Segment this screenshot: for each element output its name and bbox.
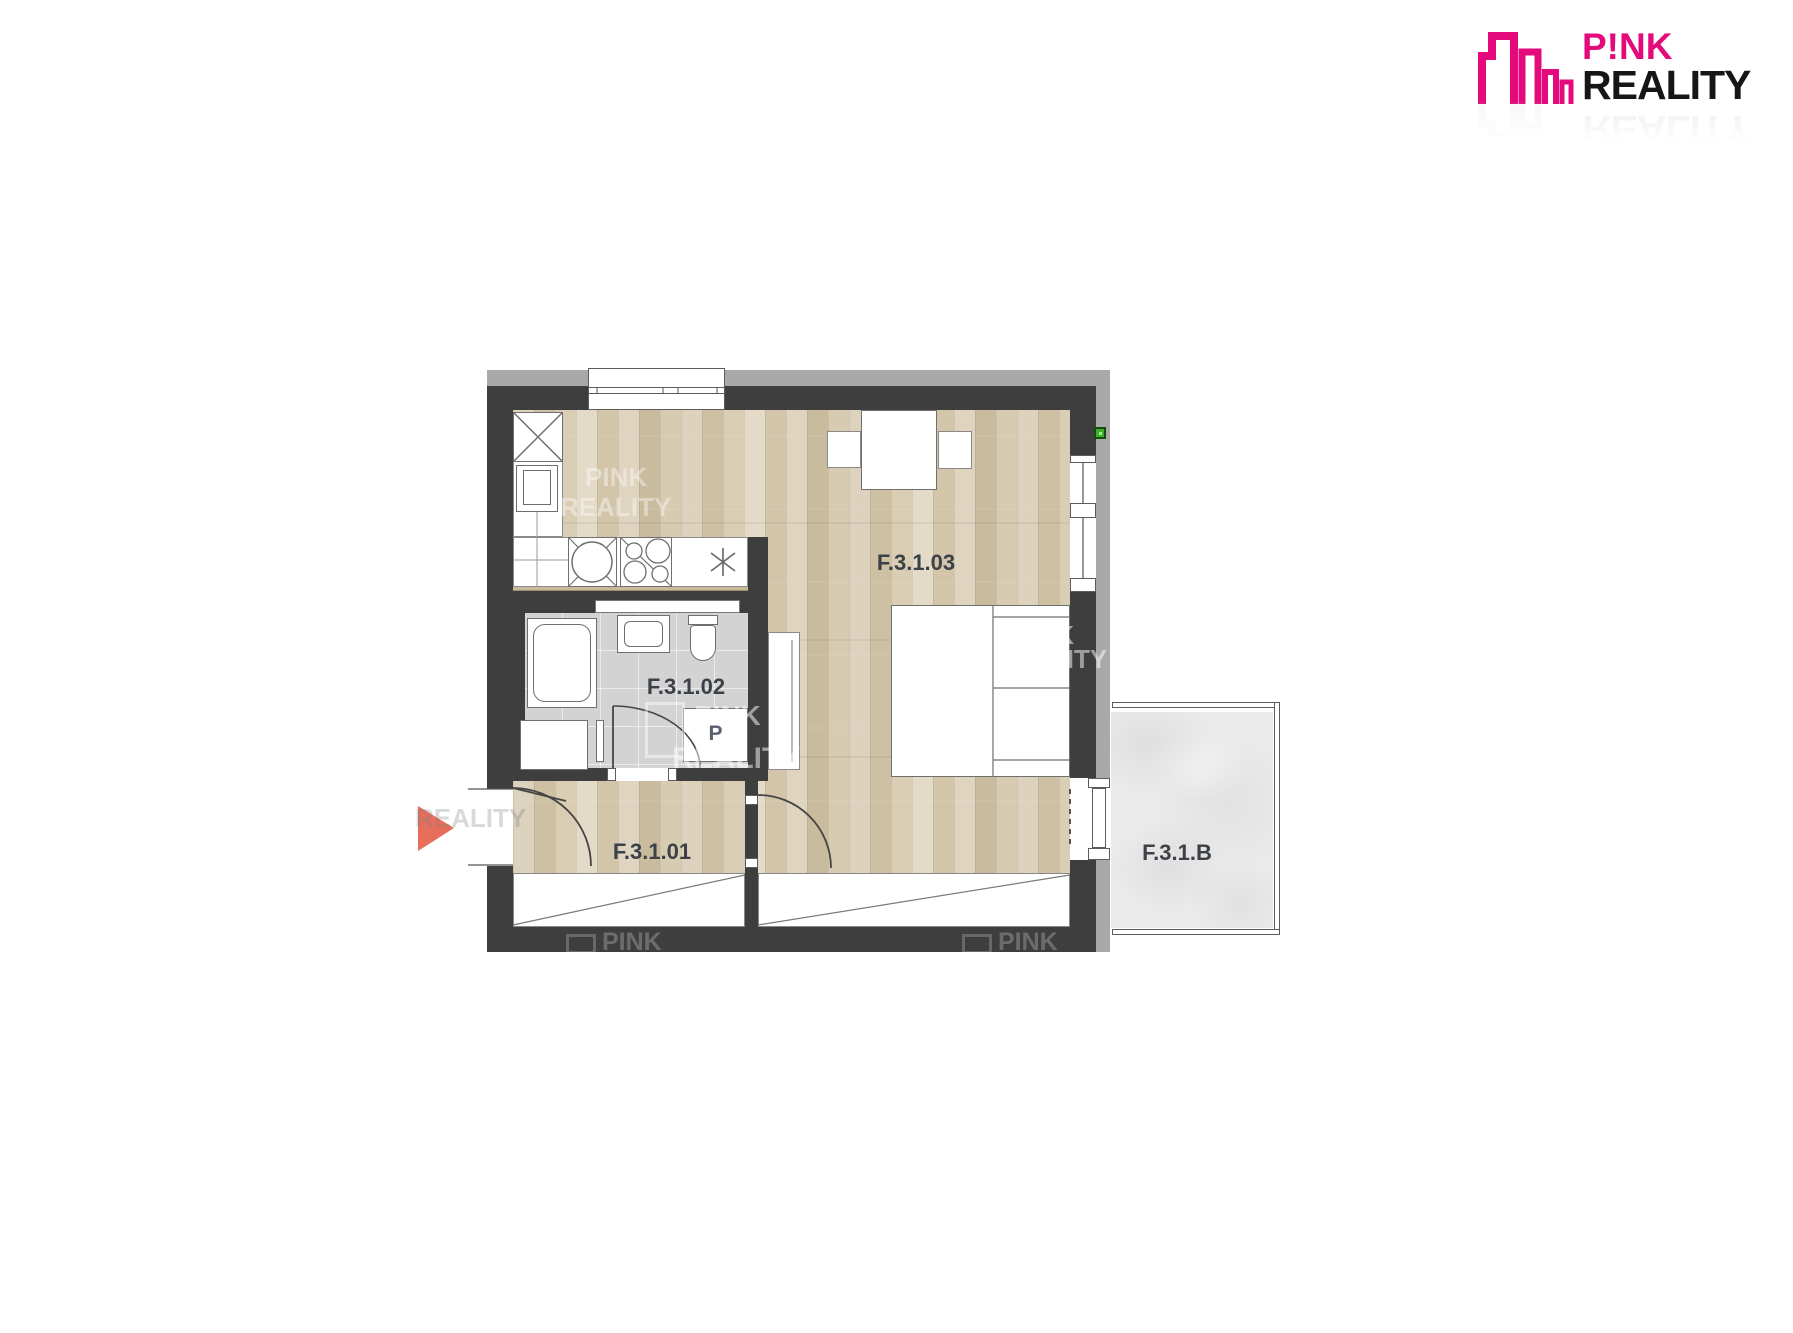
bathtub-inner — [533, 624, 591, 702]
room-label-balcony: F.3.1.B — [1122, 840, 1232, 866]
brand-logo: P!NK REALITY REALITY — [1468, 22, 1778, 147]
entrance-arrow-icon — [418, 806, 454, 851]
logo-reflection-fade — [1468, 104, 1778, 149]
room-label-bathroom: F.3.1.02 — [631, 674, 741, 700]
floorplan-page: P — [0, 0, 1793, 1333]
east-window-gap — [1070, 455, 1096, 592]
bathroom-sink-basin — [624, 621, 663, 647]
bathroom-duct-niche — [595, 600, 740, 613]
room-label-living: F.3.1.03 — [861, 550, 971, 576]
balcony-door-leaf — [1092, 788, 1106, 848]
wall-left-upper — [487, 386, 513, 789]
east-window-frame-top — [1070, 455, 1096, 463]
closet-right — [758, 873, 1070, 927]
chair-left — [827, 431, 861, 468]
east-window-frame-bottom — [1070, 578, 1096, 592]
wall-right-below-balcony-door — [1070, 860, 1096, 927]
wall-right-above-window — [1070, 410, 1096, 455]
north-window-sill — [588, 393, 725, 410]
washing-machine-label: P — [683, 722, 748, 746]
kitchen-hob-box — [620, 537, 672, 587]
chair-right — [938, 431, 972, 469]
wall-top-right — [725, 386, 1096, 410]
bathroom-door-jamb — [596, 720, 604, 762]
room-label-hallway: F.3.1.01 — [597, 839, 707, 865]
toilet-bowl — [690, 625, 716, 661]
outer-edge-top — [487, 370, 1110, 386]
brand-logo-skyline-icon — [1472, 26, 1576, 106]
outer-edge-right-lower — [1096, 860, 1110, 952]
kitchen-counter-edge — [513, 587, 748, 591]
toilet-tank — [688, 615, 718, 625]
outer-edge-right-upper — [1096, 386, 1110, 778]
bathroom-door-frame-right — [668, 768, 677, 781]
north-window-outer — [588, 368, 725, 388]
bathroom-door-gap — [607, 768, 677, 781]
utility-marker — [1094, 427, 1106, 439]
bathroom-door-frame-left — [607, 768, 616, 781]
dining-table — [861, 410, 937, 490]
balcony-railing-top — [1112, 702, 1280, 708]
balcony-floor — [1111, 712, 1273, 928]
wall-right-mid — [1070, 592, 1096, 778]
kitchen-oven-inner — [523, 470, 551, 505]
balcony-railing-bottom — [1112, 929, 1280, 935]
balcony-railing-right — [1274, 702, 1280, 935]
balcony-door-frame-top — [1088, 778, 1110, 788]
balcony-door-frame-bottom — [1088, 848, 1110, 860]
living-door-frame-top — [745, 795, 758, 805]
bed — [891, 605, 1070, 777]
brand-name-bottom: REALITY — [1582, 62, 1750, 109]
entrance-door-gap — [487, 789, 513, 866]
kitchen-sink-box — [568, 537, 617, 587]
living-door-frame-bottom — [745, 858, 758, 868]
kitchen-fridge-cabinet — [513, 412, 563, 462]
wardrobe — [768, 632, 800, 770]
bathroom-niche-box — [520, 720, 588, 770]
wall-bathroom-right — [748, 537, 768, 781]
closet-left — [513, 873, 745, 927]
wall-bottom — [487, 927, 1096, 952]
east-window-frame-mid — [1070, 503, 1096, 518]
